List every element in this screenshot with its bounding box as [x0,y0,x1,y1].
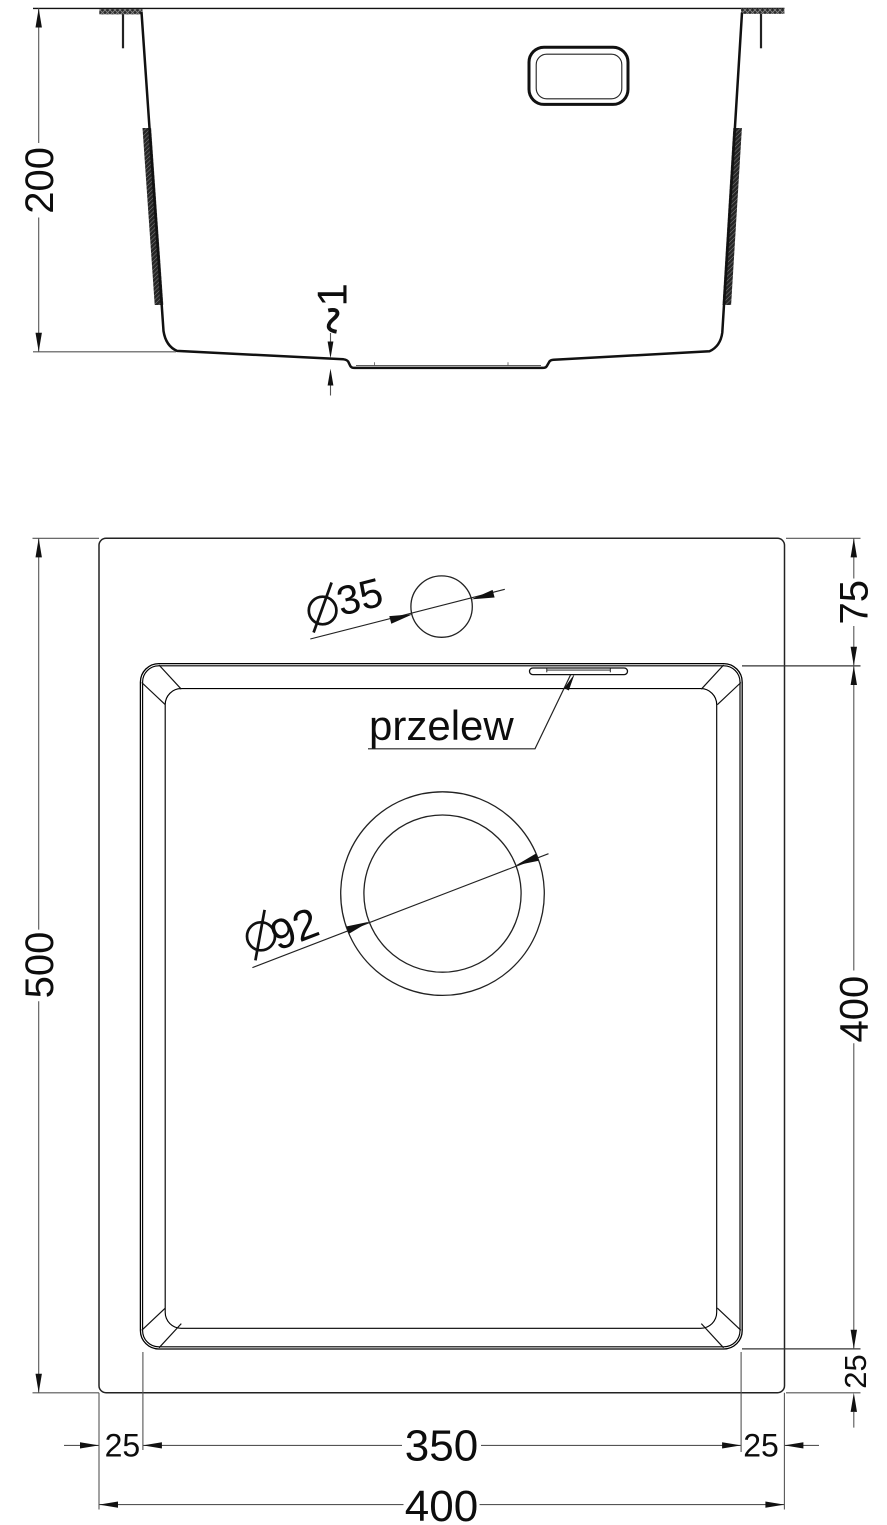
svg-text:75: 75 [832,580,876,625]
svg-text:25: 25 [838,1354,873,1388]
svg-text:350: 350 [405,1422,478,1471]
svg-text:1: 1 [309,283,356,306]
svg-text:35: 35 [332,569,388,625]
svg-text:500: 500 [18,932,62,999]
svg-text:400: 400 [832,976,876,1043]
svg-text:92: 92 [264,900,325,961]
svg-text:przelew: przelew [369,702,514,749]
svg-text:25: 25 [105,1428,141,1464]
svg-text:200: 200 [18,147,62,214]
svg-text:400: 400 [405,1482,478,1525]
svg-text:25: 25 [743,1428,779,1464]
